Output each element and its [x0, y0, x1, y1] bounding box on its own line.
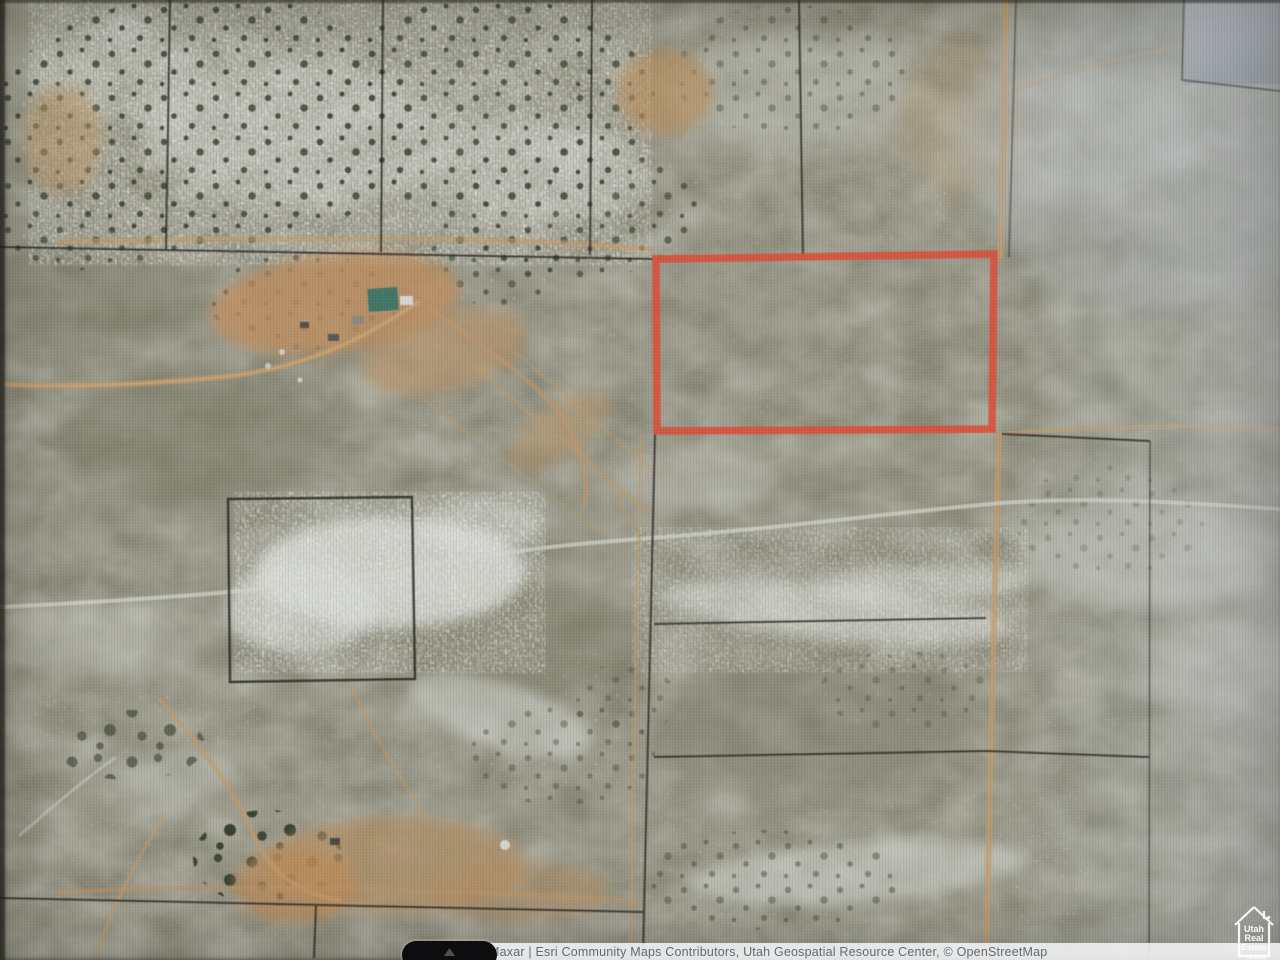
attribution-bar: Maxar | Esri Community Maps Contributors…	[476, 943, 1280, 960]
house-icon: Utah Real Estate .com	[1230, 904, 1278, 960]
utahrealestate-watermark: Utah Real Estate .com	[1230, 904, 1278, 960]
esri-attribution-button[interactable]	[402, 941, 497, 960]
watermark-line-4: .com	[1246, 951, 1266, 960]
attribution-text: Maxar | Esri Community Maps Contributors…	[489, 945, 1047, 959]
esri-attribution-toggle-icon	[444, 948, 455, 956]
haze-overlay	[960, 0, 1280, 960]
map-canvas[interactable]	[0, 0, 1280, 960]
imagery-gap-box	[1182, 0, 1280, 91]
satellite-imagery	[0, 0, 1280, 960]
map-view: Maxar | Esri Community Maps Contributors…	[0, 0, 1280, 960]
